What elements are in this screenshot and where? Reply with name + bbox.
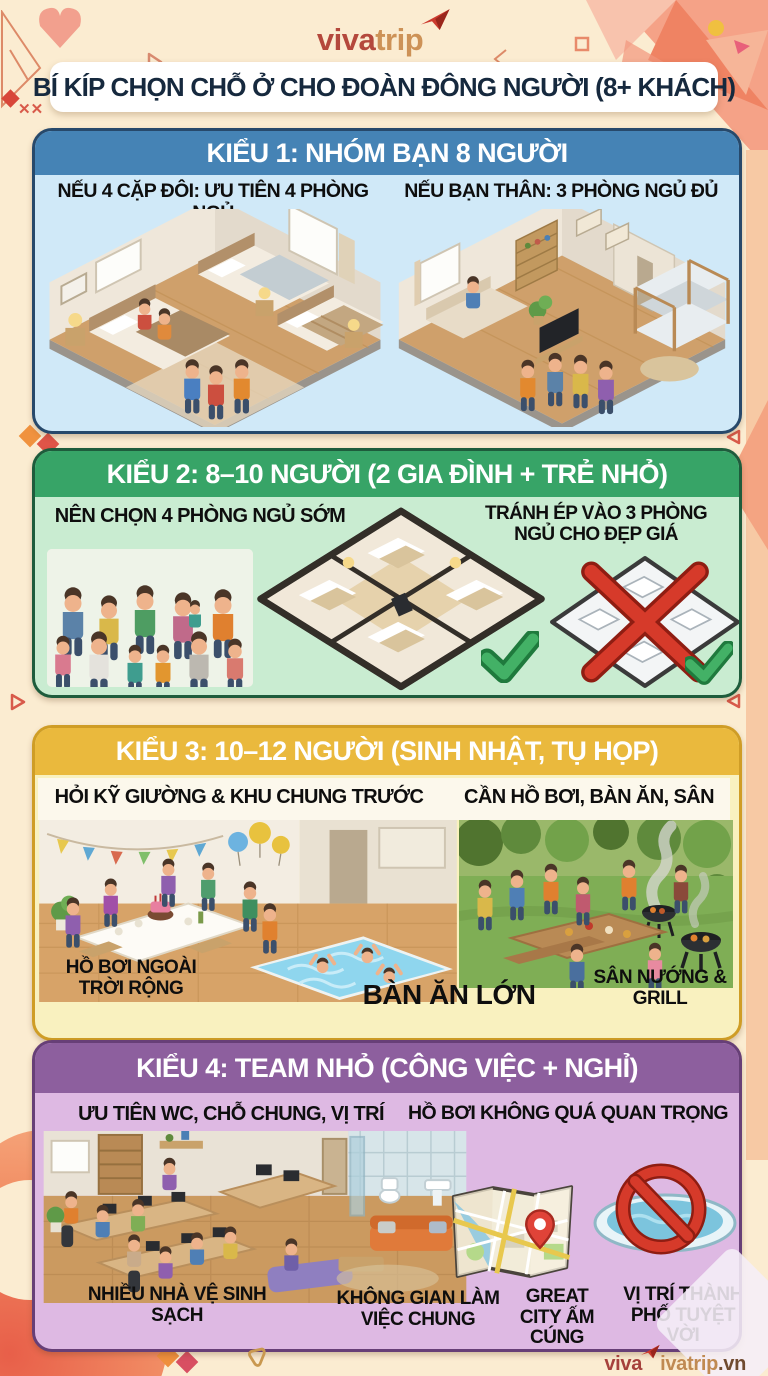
footer-brand: vivaivatrip.vn [500, 1344, 746, 1376]
footer-brand-ivatrip: ivatrip [660, 1353, 718, 1375]
section-kieu-2: KIỂU 2: 8–10 NGƯỜI (2 GIA ĐÌNH + TRẺ NHỎ… [32, 448, 742, 698]
section1-right-label: NẾU BẠN THÂN: 3 PHÒNG NGỦ ĐỦ [387, 181, 735, 203]
section-kieu-4: KIỂU 4: TEAM NHỎ (CÔNG VIỆC + NGHỈ) ƯU T… [32, 1040, 742, 1352]
section4-left-label: ƯU TIÊN WC, CHỖ CHUNG, VỊ TRÍ [61, 1103, 401, 1125]
triangle-outline-icon [246, 1346, 268, 1368]
garden-bbq-illustration [459, 820, 733, 988]
caption-city-map: GREAT CITY ẤM CÚNG [505, 1287, 609, 1349]
shared-living-bunkbed-room-illustration [391, 209, 733, 427]
pink-diamond-decoration [176, 1351, 199, 1374]
vivatrip-logo: vivatrip [0, 8, 768, 58]
paper-plane-icon [641, 1344, 661, 1360]
right-edge-strip [746, 150, 768, 1160]
caption-dining-table: BÀN ĂN LỚN [341, 980, 557, 1010]
section-kieu-3: KIỂU 3: 10–12 NGƯỜI (SINH NHẬT, TỤ HỌP) … [32, 725, 742, 1041]
two-family-group-photo [47, 549, 253, 687]
section3-header: KIỂU 3: 10–12 NGƯỜI (SINH NHẬT, TỤ HỌP) [35, 728, 739, 775]
footer-brand-tld: .vn [718, 1353, 746, 1375]
section3-right-label: CẦN HỒ BƠI, BÀN ĂN, SÂN [447, 786, 731, 808]
caption-bathrooms: NHIỀU NHÀ VỆ SINH SẠCH [87, 1285, 267, 1326]
x-mark-decoration: ✕✕ [18, 100, 43, 118]
four-bedroom-couples-room-illustration [41, 209, 389, 427]
check-icon [481, 631, 539, 683]
section-kieu-1: KIỂU 1: NHÓM BẠN 8 NGƯỜI NẾU 4 CẶP ĐÔI: … [32, 128, 742, 434]
section4-header: KIỂU 4: TEAM NHỎ (CÔNG VIỆC + NGHỈ) [35, 1043, 739, 1093]
section1-header: KIỂU 1: NHÓM BẠN 8 NGƯỜI [35, 131, 739, 175]
triangle-outline-icon [8, 692, 28, 712]
caption-grill: SÂN NƯỚNG & GRILL [587, 968, 733, 1009]
logo-text-viva: viva [317, 22, 375, 57]
pool-crossed-out-icon [587, 1161, 739, 1261]
caption-pool: HỒ BƠI NGOÀI TRỜI RỘNG [61, 958, 201, 999]
section4-right-label: HỒ BƠI KHÔNG QUÁ QUAN TRỌNG [403, 1103, 733, 1125]
infographic-canvas: ✕✕ vivatrip BÍ KÍP CHỌN CHỖ Ở CHO ĐOÀN Đ… [0, 0, 768, 1376]
logo-text-trip: trip [375, 22, 423, 57]
section2-header: KIỂU 2: 8–10 NGƯỜI (2 GIA ĐÌNH + TRẺ NHỎ… [35, 451, 739, 497]
caption-workspace: KHÔNG GIAN LÀM VIỆC CHUNG [323, 1289, 513, 1330]
paper-plane-icon [421, 8, 451, 32]
coworking-office-bathroom-illustration [43, 1131, 467, 1303]
footer-brand-viva: viva [604, 1353, 642, 1375]
city-map-with-pin-icon [445, 1181, 579, 1289]
check-icon [685, 641, 733, 685]
section3-left-label: HỎI KỸ GIƯỜNG & KHU CHUNG TRƯỚC [49, 786, 429, 808]
page-title: BÍ KÍP CHỌN CHỖ Ở CHO ĐOÀN ĐÔNG NGƯỜI (8… [33, 72, 735, 103]
title-banner: BÍ KÍP CHỌN CHỖ Ở CHO ĐOÀN ĐÔNG NGƯỜI (8… [50, 62, 718, 112]
